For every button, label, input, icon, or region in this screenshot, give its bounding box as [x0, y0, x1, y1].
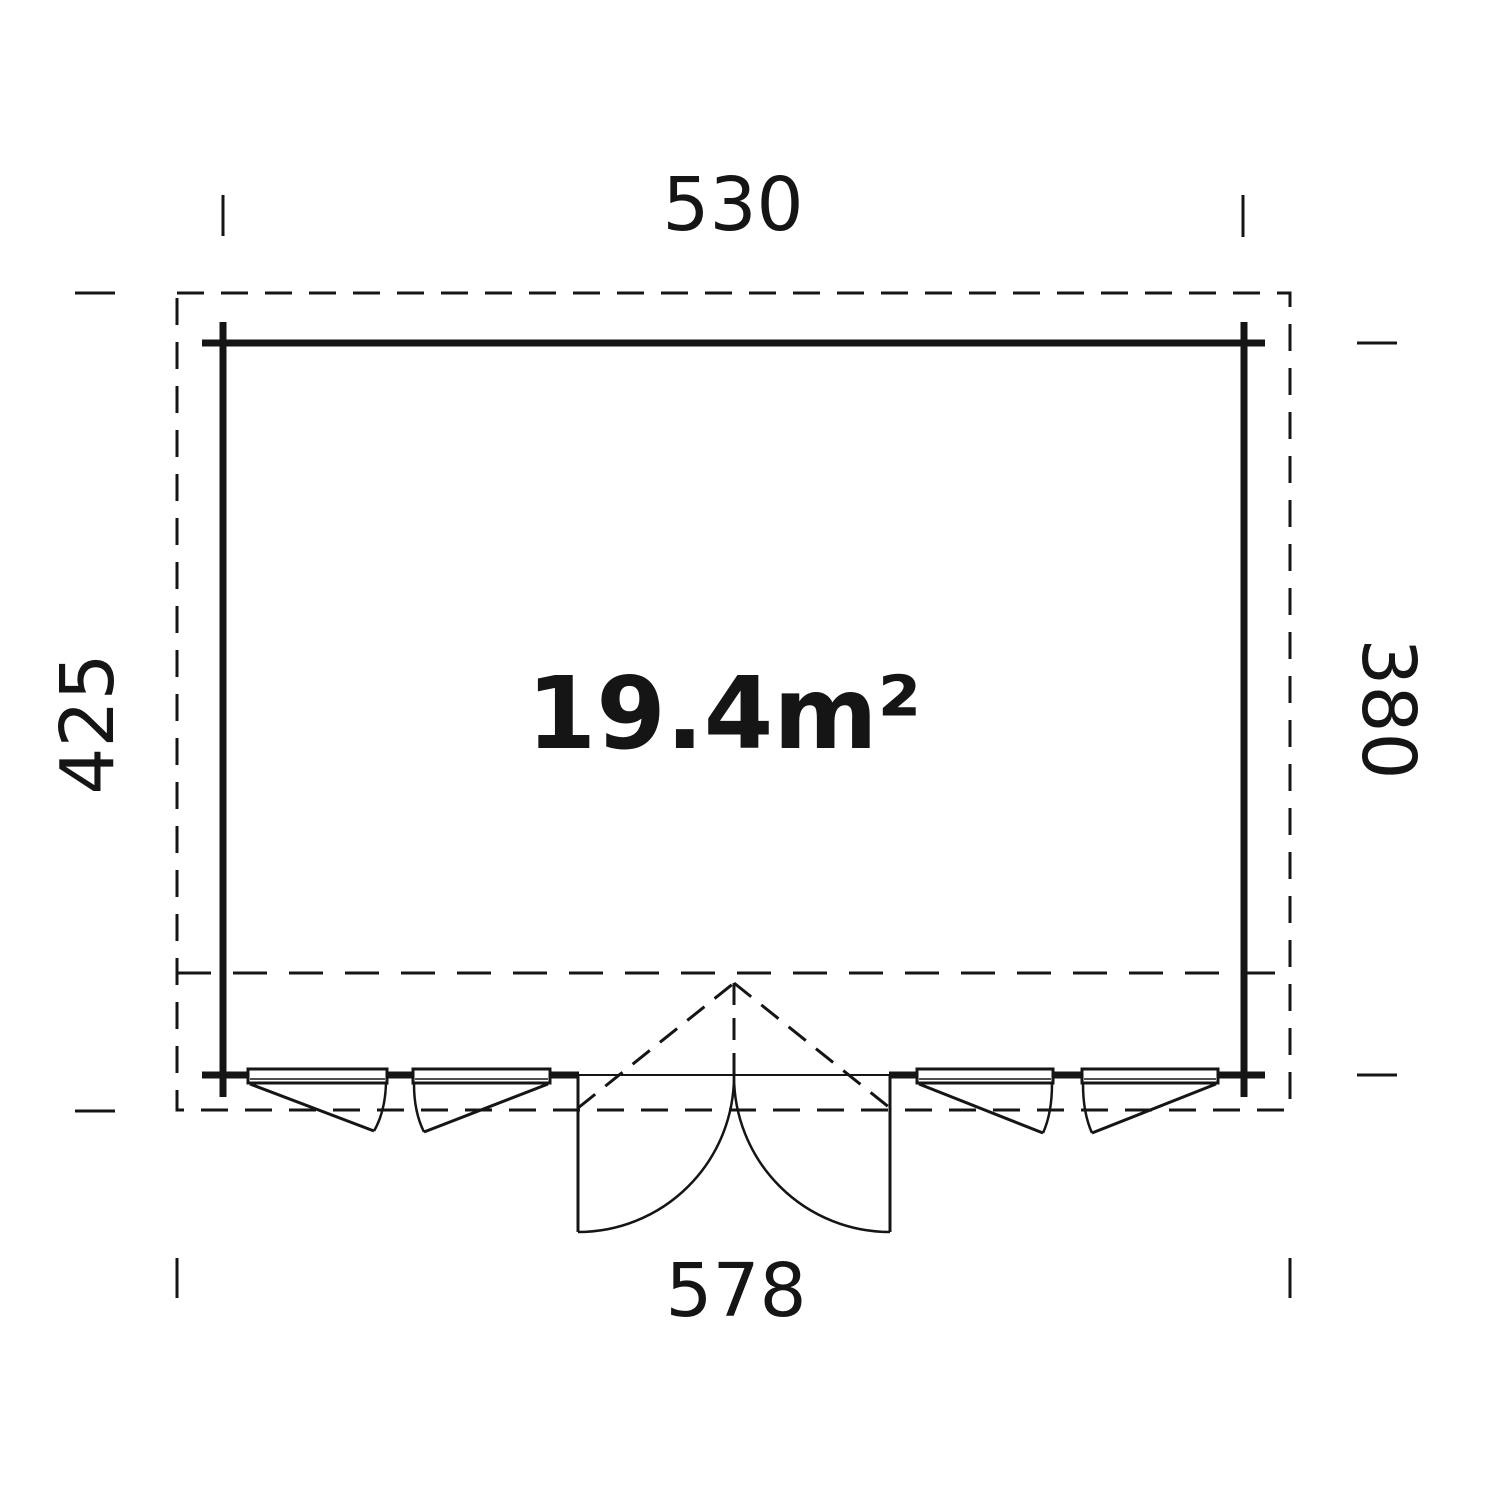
double-door	[578, 983, 890, 1232]
dimension-label-top: 530	[662, 168, 803, 242]
window-2	[413, 1069, 550, 1132]
dimension-label-left: 425	[51, 653, 125, 794]
door-swing-arc-right	[734, 1076, 890, 1232]
window-1	[248, 1069, 387, 1131]
dimension-label-bottom: 578	[665, 1254, 806, 1328]
dimension-label-right: 380	[1351, 638, 1425, 779]
area-label: 19.4m²	[527, 664, 922, 764]
floor-plan: 530 578 425 380 19.4m²	[0, 0, 1500, 1500]
window-4	[1082, 1069, 1218, 1133]
door-swing-arc-left	[578, 1076, 734, 1232]
window-3	[917, 1069, 1053, 1133]
